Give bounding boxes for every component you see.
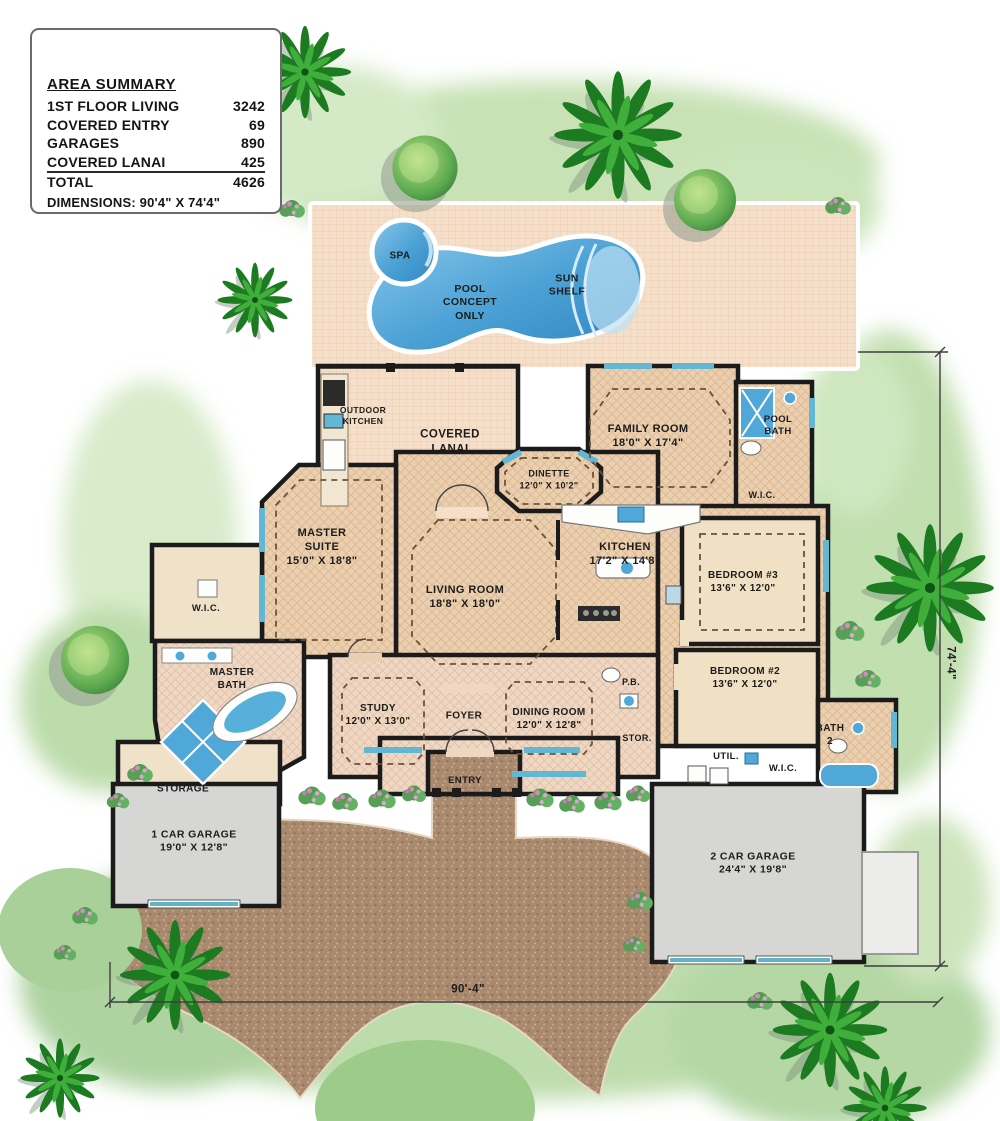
area-summary-row: GARAGES 890 — [47, 134, 265, 153]
area-summary-row-label: TOTAL — [47, 173, 93, 192]
bedroom-3-room — [682, 518, 818, 644]
sun-shelf-area — [584, 246, 640, 334]
area-summary-row-value: 4626 — [233, 173, 265, 192]
area-summary-row: 1ST FLOOR LIVING 3242 — [47, 97, 265, 116]
area-summary-row-value: 890 — [241, 134, 265, 153]
area-summary-title: AREA SUMMARY — [47, 76, 265, 93]
area-summary-row-value: 425 — [241, 153, 265, 172]
area-summary-row-total: TOTAL 4626 — [47, 173, 265, 192]
outdoor-kitchen-counters — [321, 374, 348, 506]
area-summary-row: COVERED ENTRY 69 — [47, 116, 265, 135]
spa-shape — [372, 220, 436, 284]
area-summary-dimensions: DIMENSIONS: 90'4" X 74'4" — [47, 195, 265, 210]
two-car-garage-room — [652, 784, 864, 962]
wic-bench — [198, 580, 217, 597]
area-summary-row-value: 69 — [249, 116, 265, 135]
entry-porch — [428, 752, 520, 794]
palm-tree — [214, 263, 292, 341]
utility-fixtures — [688, 753, 758, 784]
one-car-garage-room — [113, 784, 279, 906]
floor-plan-canvas: AREA SUMMARY 1ST FLOOR LIVING 3242 COVER… — [0, 0, 1000, 1121]
area-summary-row: COVERED LANAI 425 — [47, 153, 265, 174]
area-summary-row-label: 1ST FLOOR LIVING — [47, 97, 179, 116]
area-summary-row-value: 3242 — [233, 97, 265, 116]
garage-side-pad — [862, 852, 918, 954]
area-summary-row-label: GARAGES — [47, 134, 119, 153]
area-summary-row-label: COVERED ENTRY — [47, 116, 170, 135]
bedroom-2-room — [676, 650, 818, 746]
area-summary-box: AREA SUMMARY 1ST FLOOR LIVING 3242 COVER… — [30, 28, 282, 214]
area-summary-row-label: COVERED LANAI — [47, 153, 166, 172]
